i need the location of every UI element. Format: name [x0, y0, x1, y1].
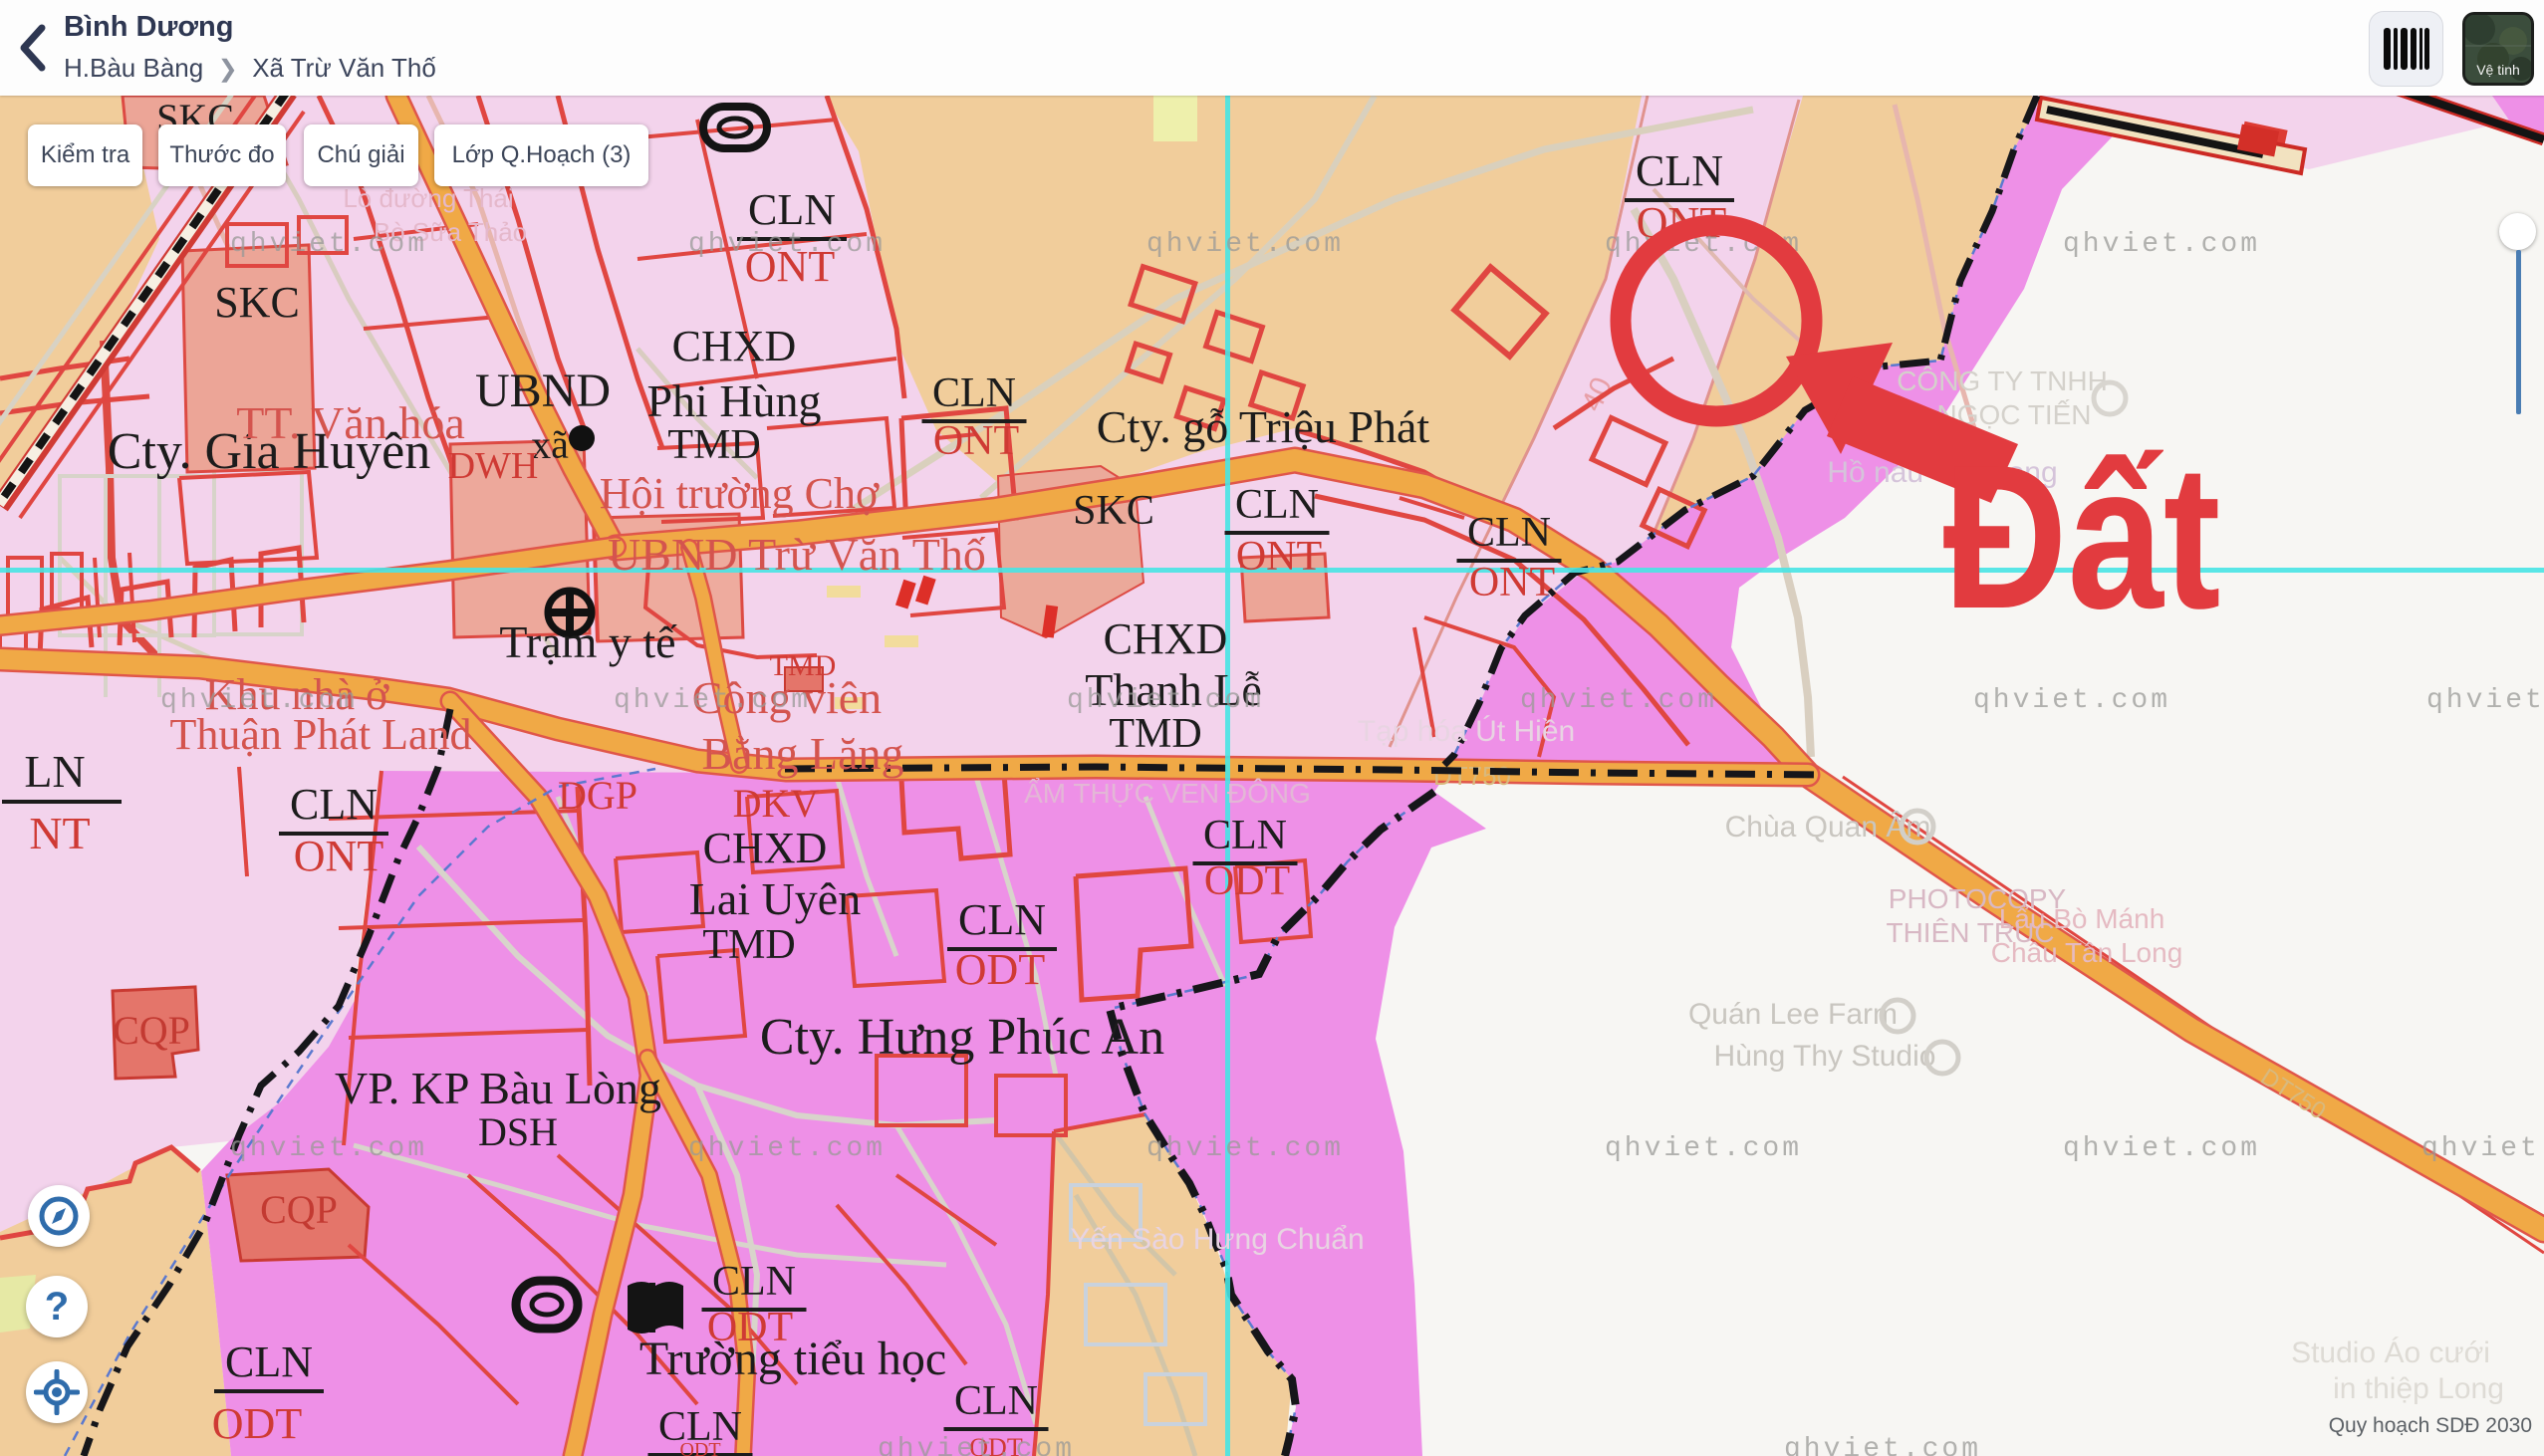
svg-text:Studio Áo cưới: Studio Áo cưới: [2291, 1336, 2490, 1369]
svg-text:NT: NT: [29, 808, 90, 858]
svg-text:TMD: TMD: [702, 922, 795, 968]
svg-text:ONT: ONT: [1236, 534, 1322, 580]
svg-text:CQP: CQP: [113, 1008, 190, 1053]
svg-text:qhviet.com: qhviet.com: [1605, 1133, 1802, 1164]
svg-text:CLN: CLN: [748, 185, 836, 234]
svg-text:CLN: CLN: [1203, 813, 1287, 858]
svg-text:CLN: CLN: [712, 1259, 796, 1305]
svg-text:Hội trường Chợ: Hội trường Chợ: [600, 469, 880, 518]
svg-text:LN: LN: [24, 746, 85, 797]
svg-text:Trường tiểu học: Trường tiểu học: [639, 1333, 946, 1385]
svg-text:Hùng Thy Studio: Hùng Thy Studio: [1714, 1040, 1936, 1073]
svg-text:in thiệp Long: in thiệp Long: [2333, 1372, 2504, 1405]
svg-text:SKC: SKC: [214, 278, 300, 327]
svg-text:DWH: DWH: [448, 445, 539, 487]
svg-text:Lai Uyên: Lai Uyên: [689, 873, 861, 924]
svg-text:qhviet.com: qhviet.com: [878, 1434, 1075, 1456]
svg-text:Trạm y tế: Trạm y tế: [499, 616, 677, 667]
svg-text:TMD: TMD: [667, 422, 760, 468]
svg-text:TT. Văn hóa: TT. Văn hóa: [236, 397, 465, 448]
svg-text:DKV: DKV: [733, 781, 820, 826]
svg-text:CHXD: CHXD: [672, 322, 797, 370]
svg-text:CLN: CLN: [958, 895, 1046, 944]
svg-text:qhviet.com: qhviet.com: [2063, 1133, 2260, 1164]
svg-text:CÔNG TY TNHH: CÔNG TY TNHH: [1897, 365, 2108, 396]
svg-text:CHXD: CHXD: [703, 824, 828, 872]
svg-text:CLN: CLN: [1235, 482, 1319, 528]
svg-text:ONT: ONT: [1469, 560, 1555, 606]
svg-text:qhviet.com: qhviet.com: [230, 229, 427, 260]
svg-text:Phi Hùng: Phi Hùng: [646, 375, 821, 426]
svg-text:ẨM THỰC VEN ĐÔNG: ẨM THỰC VEN ĐÔNG: [1024, 778, 1311, 809]
svg-text:Yến Sào Hưng Chuẩn: Yến Sào Hưng Chuẩn: [1070, 1223, 1364, 1256]
svg-text:qhviet.com: qhviet.com: [1784, 1434, 1981, 1456]
svg-text:ODT: ODT: [955, 945, 1046, 994]
svg-text:qhviet.com: qhviet.com: [2421, 1133, 2544, 1164]
svg-text:qhviet.com: qhviet.com: [1973, 685, 2170, 716]
svg-text:CLN: CLN: [1467, 510, 1551, 556]
svg-text:ODT: ODT: [679, 1439, 720, 1456]
svg-text:qhviet.com: qhviet.com: [1520, 685, 1717, 716]
svg-text:TMD: TMD: [1109, 711, 1201, 757]
svg-text:Tạp hóa Út Hiền: Tạp hóa Út Hiền: [1358, 715, 1575, 748]
svg-text:CLN: CLN: [290, 780, 378, 829]
svg-text:Cty. gỗ Triệu Phát: Cty. gỗ Triệu Phát: [1097, 401, 1430, 452]
svg-text:Đất: Đất: [1943, 423, 2221, 652]
svg-text:qhviet.com: qhviet.com: [160, 685, 358, 716]
svg-text:Lẩu Bò Mánh: Lẩu Bò Mánh: [1999, 903, 2165, 934]
svg-text:UBND: UBND: [475, 364, 611, 417]
svg-text:SKC: SKC: [1073, 488, 1154, 534]
svg-text:ONT: ONT: [933, 418, 1019, 464]
svg-text:DGP: DGP: [558, 773, 637, 818]
svg-text:Lò đường Thái: Lò đường Thái: [343, 183, 513, 213]
svg-text:UBND Trừ Văn Thố: UBND Trừ Văn Thố: [608, 529, 986, 580]
svg-text:qhviet.com: qhviet.com: [2426, 685, 2544, 716]
svg-text:CHXD: CHXD: [1104, 614, 1228, 663]
svg-text:Quán Lee Farm: Quán Lee Farm: [1688, 998, 1898, 1031]
svg-text:Bằng Lăng: Bằng Lăng: [701, 728, 903, 779]
svg-text:CLN: CLN: [954, 1378, 1038, 1424]
svg-text:CLN: CLN: [932, 370, 1016, 416]
svg-text:Châu Tân Long: Châu Tân Long: [1991, 937, 2183, 968]
svg-text:CQP: CQP: [260, 1187, 338, 1232]
svg-text:qhviet.com: qhviet.com: [614, 685, 811, 716]
svg-text:CLN: CLN: [1636, 146, 1723, 195]
svg-text:TMD: TMD: [770, 649, 837, 682]
svg-text:qhviet.com: qhviet.com: [688, 1133, 886, 1164]
svg-text:ODT: ODT: [212, 1399, 303, 1448]
svg-text:qhviet.com: qhviet.com: [1067, 685, 1264, 716]
svg-text:VP. KP Bàu Lòng: VP. KP Bàu Lòng: [335, 1063, 661, 1113]
svg-text:ONT: ONT: [294, 832, 384, 880]
svg-text:ODT: ODT: [1204, 858, 1290, 904]
svg-text:qhviet.com: qhviet.com: [1146, 229, 1344, 260]
svg-text:qhviet.com: qhviet.com: [688, 229, 886, 260]
svg-text:Thuận Phát Land: Thuận Phát Land: [169, 710, 471, 759]
svg-text:qhviet.com: qhviet.com: [230, 1133, 427, 1164]
svg-text:qhviet.com: qhviet.com: [1146, 1133, 1344, 1164]
svg-text:CLN: CLN: [225, 1337, 313, 1386]
svg-text:Cty. Hưng Phúc An: Cty. Hưng Phúc An: [760, 1009, 1164, 1066]
svg-text:qhviet.com: qhviet.com: [2063, 229, 2260, 260]
svg-text:DSH: DSH: [478, 1109, 558, 1154]
